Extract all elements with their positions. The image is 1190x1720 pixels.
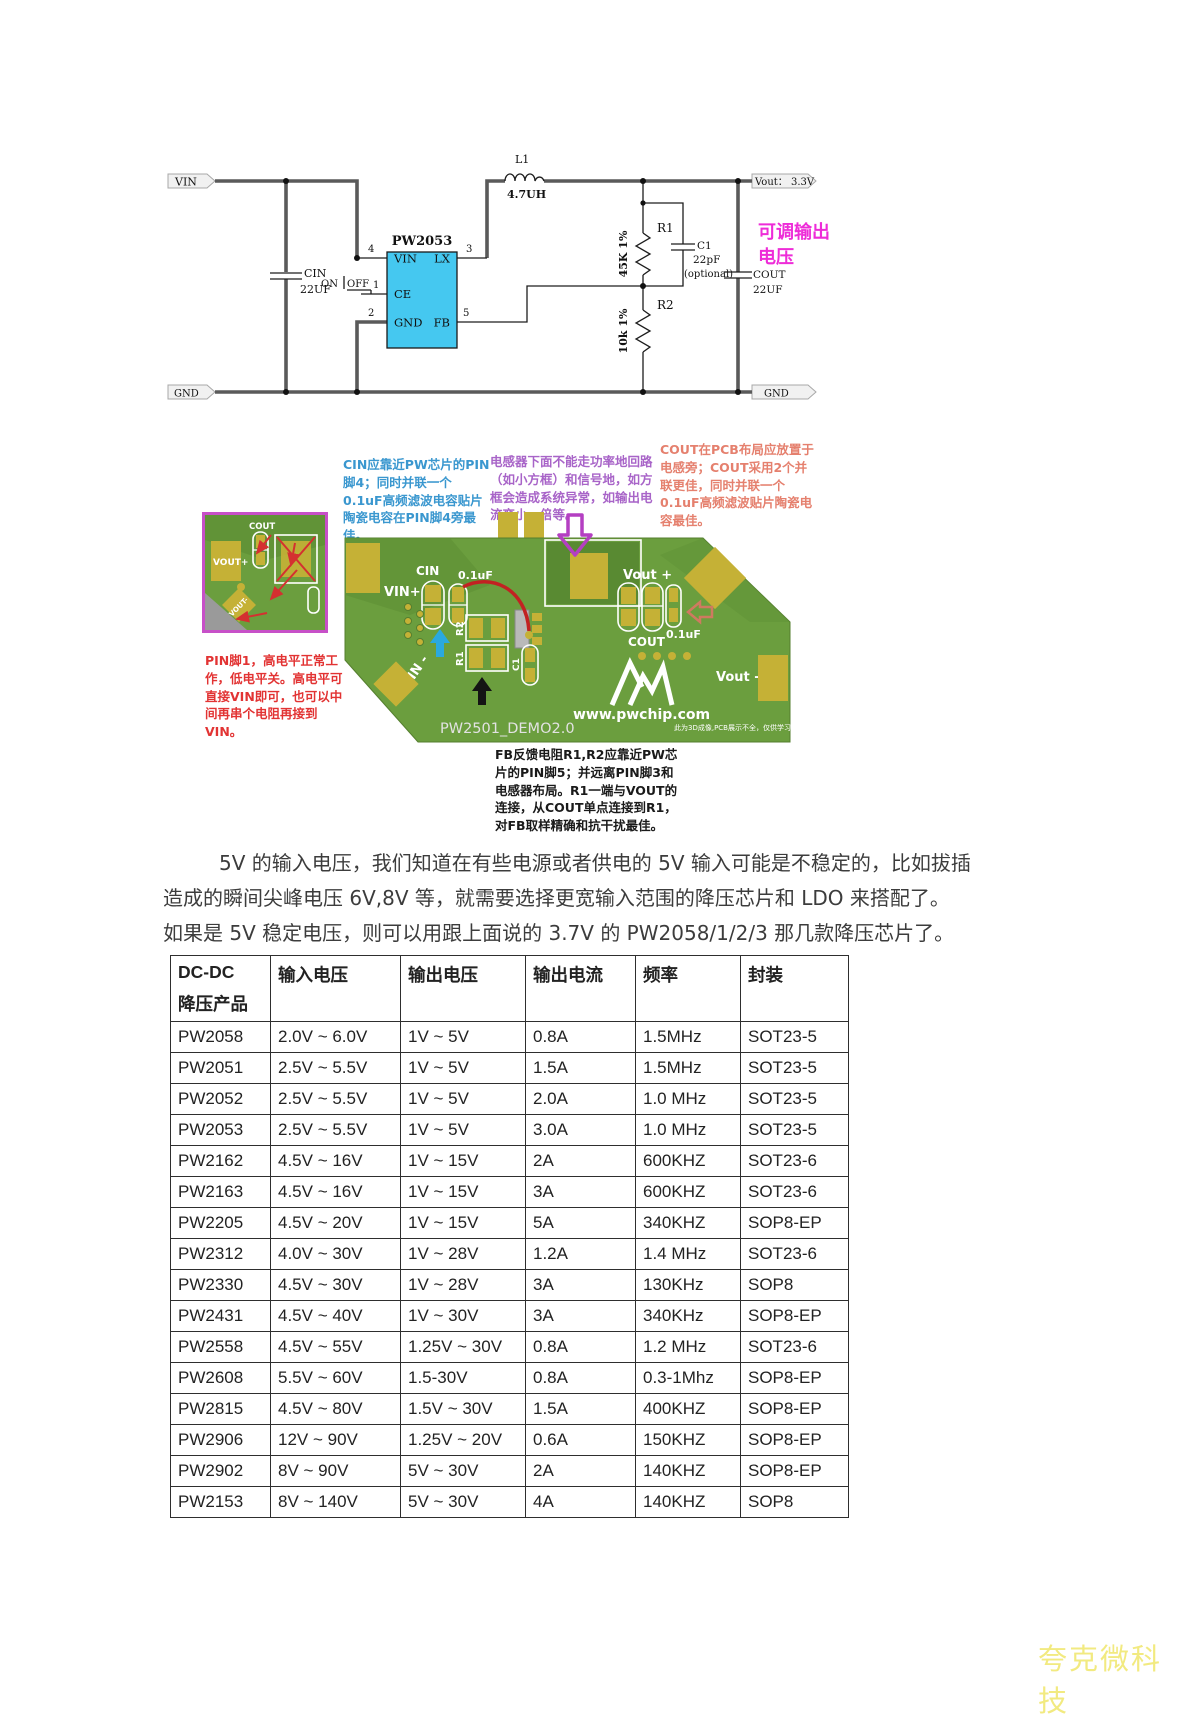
table-cell: 600KHZ <box>636 1146 741 1177</box>
gnd-right-label: GND <box>764 389 789 400</box>
paragraph-line2: 造成的瞬间尖峰电压 6V,8V 等，就需要选择更宽输入范围的降压芯片和 LDO … <box>163 881 1058 916</box>
table-cell: 1V ~ 28V <box>401 1270 526 1301</box>
table-cell: SOP8-EP <box>741 1363 849 1394</box>
note-pin1-enable: PIN脚1，高电平正常工作，低电平关。高电平可直接VIN即可，也可以中间再串个电… <box>205 652 345 741</box>
table-cell: 600KHZ <box>636 1177 741 1208</box>
header-product: DC-DC 降压产品 <box>171 956 271 1022</box>
chip-title: PW2053 <box>392 234 453 249</box>
table-row: PW21538V ~ 140V5V ~ 30V4A140KHZSOP8 <box>171 1487 849 1518</box>
table-cell: SOP8-EP <box>741 1301 849 1332</box>
adjustable-output-label: 可调输出 电压 <box>758 220 830 270</box>
table-cell: PW2053 <box>171 1115 271 1146</box>
l1-inductor: L1 4.7UH <box>505 153 546 201</box>
table-cell: 1V ~ 30V <box>401 1301 526 1332</box>
note-fb-resistors: FB反馈电阻R1,R2应靠近PW芯片的PIN脚5；并远离PIN脚3和电感器布局。… <box>495 746 681 835</box>
table-cell: 150KHZ <box>636 1425 741 1456</box>
inset-inductor-footprint <box>275 535 317 583</box>
table-cell: 5V ~ 30V <box>401 1456 526 1487</box>
pcb-board-name: PW2501_DEMO2.0 <box>440 721 575 737</box>
table-cell: SOP8-EP <box>741 1208 849 1239</box>
pcb-cout-label: COUT <box>628 635 666 649</box>
c1-value: 22pF <box>693 254 720 266</box>
pcb-vout-minus-label: Vout - <box>716 670 760 685</box>
inset-cout-label: COUT <box>249 522 275 532</box>
cout-capacitor: COUT 22UF <box>724 269 786 296</box>
table-cell: 1.0 MHz <box>636 1115 741 1146</box>
table-cell: 1.5A <box>526 1053 636 1084</box>
table-cell: 2A <box>526 1456 636 1487</box>
table-cell: PW2051 <box>171 1053 271 1084</box>
pcb-inset-image: VOUT- COUT VOUT+ <box>202 512 328 633</box>
table-cell: 4.5V ~ 55V <box>271 1332 401 1363</box>
table-cell: 0.6A <box>526 1425 636 1456</box>
table-cell: 5V ~ 30V <box>401 1487 526 1518</box>
table-cell: 140KHZ <box>636 1456 741 1487</box>
table-cell: SOT23-6 <box>741 1239 849 1270</box>
table-cell: 1.4 MHz <box>636 1239 741 1270</box>
gnd-net-flag-left: GND <box>168 385 215 400</box>
table-cell: 8V ~ 90V <box>271 1456 401 1487</box>
table-cell: SOP8-EP <box>741 1425 849 1456</box>
table-cell: 0.3-1Mhz <box>636 1363 741 1394</box>
pcb-vin-pad <box>346 543 380 593</box>
table-cell: 1V ~ 15V <box>401 1146 526 1177</box>
pcb-c1-label: C1 <box>512 658 522 671</box>
paragraph-line3: 如果是 5V 稳定电压，则可以用跟上面说的 3.7V 的 PW2058/1/2/… <box>163 916 1058 951</box>
table-cell: 1.2 MHz <box>636 1332 741 1363</box>
table-cell: PW2815 <box>171 1394 271 1425</box>
table-cell: 3A <box>526 1301 636 1332</box>
pcb-vout-pad <box>758 655 788 701</box>
table-cell: 3A <box>526 1177 636 1208</box>
table-cell: PW2205 <box>171 1208 271 1239</box>
header-output-voltage: 输出电压 <box>401 956 526 1022</box>
table-cell: 3.0A <box>526 1115 636 1146</box>
r1-value: 45K 1% <box>617 230 630 277</box>
table-cell: 1V ~ 5V <box>401 1053 526 1084</box>
table-cell: 400KHZ <box>636 1394 741 1425</box>
table-cell: 0.8A <box>526 1022 636 1053</box>
body-paragraph: 5V 的输入电压，我们知道在有些电源或者供电的 5V 输入可能是不稳定的，比如拔… <box>163 846 1058 951</box>
pin-label-gnd: GND <box>394 316 422 330</box>
table-cell: 4.0V ~ 30V <box>271 1239 401 1270</box>
table-cell: PW2330 <box>171 1270 271 1301</box>
table-cell: 4.5V ~ 16V <box>271 1146 401 1177</box>
table-cell: 2.5V ~ 5.5V <box>271 1115 401 1146</box>
pcb-r1-label: R1 <box>455 651 466 666</box>
table-cell: 4.5V ~ 40V <box>271 1301 401 1332</box>
table-cell: SOT23-5 <box>741 1022 849 1053</box>
table-cell: 2.0V ~ 6.0V <box>271 1022 401 1053</box>
pcb-vin-plus-label: VIN+ <box>384 585 421 600</box>
table-cell: 1V ~ 5V <box>401 1084 526 1115</box>
table-row: PW21624.5V ~ 16V1V ~ 15V2A600KHZSOT23-6 <box>171 1146 849 1177</box>
table-cell: PW2608 <box>171 1363 271 1394</box>
header-product-line2: 降压产品 <box>178 991 263 1016</box>
table-row: PW28154.5V ~ 80V1.5V ~ 30V1.5A400KHZSOP8… <box>171 1394 849 1425</box>
l1-value: 4.7UH <box>507 188 546 201</box>
table-cell: 1V ~ 5V <box>401 1115 526 1146</box>
table-cell: PW2153 <box>171 1487 271 1518</box>
table-row: PW20512.5V ~ 5.5V1V ~ 5V1.5A1.5MHzSOT23-… <box>171 1053 849 1084</box>
table-cell: SOP8-EP <box>741 1456 849 1487</box>
schematic-wires <box>215 178 752 395</box>
adjustable-output-line2: 电压 <box>758 245 830 270</box>
table-cell: PW2052 <box>171 1084 271 1115</box>
dcdc-table-body: PW20582.0V ~ 6.0V1V ~ 5V0.8A1.5MHzSOT23-… <box>171 1022 849 1518</box>
table-row: PW26085.5V ~ 60V1.5-30V0.8A0.3-1MhzSOP8-… <box>171 1363 849 1394</box>
pw2053-chip: PW2053 VIN CE GND LX FB 4 1 2 3 5 <box>368 234 472 348</box>
cin-ref: CIN <box>304 267 327 280</box>
gnd-left-label: GND <box>174 389 199 400</box>
cout-value: 22UF <box>753 284 783 296</box>
table-row: PW23124.0V ~ 30V1V ~ 28V1.2A1.4 MHzSOT23… <box>171 1239 849 1270</box>
pin-number-4: 4 <box>368 244 374 255</box>
table-cell: 5.5V ~ 60V <box>271 1363 401 1394</box>
table-cell: 1V ~ 28V <box>401 1239 526 1270</box>
pcb-inset-canvas: VOUT- COUT VOUT+ <box>205 515 325 630</box>
adjustable-output-line1: 可调输出 <box>758 220 830 245</box>
pin-label-lx: LX <box>434 252 451 266</box>
r2-resistor: R2 10k 1% <box>617 298 674 353</box>
switch-off-label: OFF <box>347 279 369 290</box>
vout-net-flag: Vout： 3.3V <box>752 174 816 188</box>
pcb-cin-label: CIN <box>416 564 439 578</box>
header-product-line1: DC-DC <box>178 962 263 983</box>
pcb-board-image: CIN 0.1uF VIN+ R2 R1 <box>330 495 860 745</box>
table-cell: 4.5V ~ 30V <box>271 1270 401 1301</box>
header-input-voltage: 输入电压 <box>271 956 401 1022</box>
table-cell: 1.25V ~ 20V <box>401 1425 526 1456</box>
table-cell: 1.5V ~ 30V <box>401 1394 526 1425</box>
pcb-cout-cap-label: 0.1uF <box>666 628 701 641</box>
table-row: PW25584.5V ~ 55V1.25V ~ 30V0.8A1.2 MHzSO… <box>171 1332 849 1363</box>
table-row: PW21634.5V ~ 16V1V ~ 15V3A600KHZSOT23-6 <box>171 1177 849 1208</box>
pin-number-3: 3 <box>466 244 472 255</box>
table-cell: 1.5-30V <box>401 1363 526 1394</box>
table-cell: 2.5V ~ 5.5V <box>271 1084 401 1115</box>
table-cell: PW2902 <box>171 1456 271 1487</box>
table-cell: SOP8 <box>741 1270 849 1301</box>
gnd-net-flag-right: GND <box>752 385 816 400</box>
cout-ref: COUT <box>753 269 786 281</box>
header-frequency: 频率 <box>636 956 741 1022</box>
table-row: PW24314.5V ~ 40V1V ~ 30V3A340KHzSOP8-EP <box>171 1301 849 1332</box>
table-cell: 5A <box>526 1208 636 1239</box>
table-cell: SOT23-6 <box>741 1177 849 1208</box>
table-cell: PW2906 <box>171 1425 271 1456</box>
r1-ref: R1 <box>657 221 674 235</box>
r2-ref: R2 <box>657 298 674 312</box>
table-cell: PW2058 <box>171 1022 271 1053</box>
vin-net-flag: VIN <box>168 174 215 189</box>
table-cell: 2.5V ~ 5.5V <box>271 1053 401 1084</box>
table-cell: 130KHz <box>636 1270 741 1301</box>
table-cell: 1.5MHz <box>636 1022 741 1053</box>
table-cell: 1V ~ 5V <box>401 1022 526 1053</box>
pin-label-vin: VIN <box>393 252 417 266</box>
table-cell: 0.8A <box>526 1332 636 1363</box>
table-header-row: DC-DC 降压产品 输入电压 输出电压 输出电流 频率 封装 <box>171 956 849 1022</box>
table-cell: 8V ~ 140V <box>271 1487 401 1518</box>
c1-ref: C1 <box>697 240 712 252</box>
pin-label-fb: FB <box>434 316 450 330</box>
table-cell: 1.2A <box>526 1239 636 1270</box>
vout-flag-label: Vout： 3.3V <box>754 177 815 188</box>
table-cell: 140KHZ <box>636 1487 741 1518</box>
inset-vout-plus-label: VOUT+ <box>213 558 248 568</box>
table-row: PW20532.5V ~ 5.5V1V ~ 5V3.0A1.0 MHzSOT23… <box>171 1115 849 1146</box>
table-cell: PW2162 <box>171 1146 271 1177</box>
table-cell: 340KHZ <box>636 1208 741 1239</box>
table-row: PW29028V ~ 90V5V ~ 30V2A140KHZSOP8-EP <box>171 1456 849 1487</box>
table-cell: 2A <box>526 1146 636 1177</box>
table-cell: 4A <box>526 1487 636 1518</box>
table-row: PW23304.5V ~ 30V1V ~ 28V3A130KHzSOP8 <box>171 1270 849 1301</box>
table-cell: 1.0 MHz <box>636 1084 741 1115</box>
pcb-website-label: www.pwchip.com <box>573 707 710 723</box>
watermark-text: 夸克微科技 <box>1038 1636 1190 1720</box>
table-cell: SOP8 <box>741 1487 849 1518</box>
table-cell: 1.5MHz <box>636 1053 741 1084</box>
table-row: PW20582.0V ~ 6.0V1V ~ 5V0.8A1.5MHzSOT23-… <box>171 1022 849 1053</box>
r1-resistor: R1 45K 1% <box>617 221 674 277</box>
schematic-diagram: VIN Vout： 3.3V GND GND <box>163 148 823 408</box>
c1-capacitor: C1 22pF (optional) <box>671 240 733 280</box>
table-cell: SOT23-5 <box>741 1053 849 1084</box>
table-cell: SOP8-EP <box>741 1394 849 1425</box>
pin-number-1: 1 <box>373 280 379 291</box>
pin-number-5: 5 <box>463 308 469 319</box>
table-row: PW20522.5V ~ 5.5V1V ~ 5V2.0A1.0 MHzSOT23… <box>171 1084 849 1115</box>
table-cell: 4.5V ~ 16V <box>271 1177 401 1208</box>
vin-flag-label: VIN <box>174 176 197 189</box>
pcb-disclaimer: 此为3D成像,PCB展示不全，仅供学习。 <box>674 723 798 732</box>
table-cell: PW2163 <box>171 1177 271 1208</box>
pcb-r2-label: R2 <box>455 621 466 636</box>
pin-number-2: 2 <box>368 308 374 319</box>
table-cell: 3A <box>526 1270 636 1301</box>
table-cell: SOT23-6 <box>741 1332 849 1363</box>
table-cell: SOT23-6 <box>741 1146 849 1177</box>
table-cell: PW2312 <box>171 1239 271 1270</box>
dcdc-product-table: DC-DC 降压产品 输入电压 输出电压 输出电流 频率 封装 PW20582.… <box>170 955 849 1518</box>
table-cell: 1.25V ~ 30V <box>401 1332 526 1363</box>
table-cell: 1V ~ 15V <box>401 1177 526 1208</box>
pin-label-ce: CE <box>394 287 411 301</box>
r2-value: 10k 1% <box>617 308 630 353</box>
pcb-cin-cap-label: 0.1uF <box>458 569 493 582</box>
table-cell: SOT23-5 <box>741 1084 849 1115</box>
table-row: PW22054.5V ~ 20V1V ~ 15V5A340KHZSOP8-EP <box>171 1208 849 1239</box>
cin-value: 22UF <box>300 283 331 296</box>
pcb-vout-plus-label: Vout + <box>623 568 672 583</box>
table-cell: PW2431 <box>171 1301 271 1332</box>
table-cell: 1.5A <box>526 1394 636 1425</box>
table-cell: SOT23-5 <box>741 1115 849 1146</box>
table-cell: 4.5V ~ 80V <box>271 1394 401 1425</box>
table-row: PW290612V ~ 90V1.25V ~ 20V0.6A150KHZSOP8… <box>171 1425 849 1456</box>
table-cell: 2.0A <box>526 1084 636 1115</box>
header-package: 封装 <box>741 956 849 1022</box>
header-output-current: 输出电流 <box>526 956 636 1022</box>
table-cell: PW2558 <box>171 1332 271 1363</box>
l1-ref: L1 <box>515 153 529 166</box>
table-cell: 340KHz <box>636 1301 741 1332</box>
paragraph-line1: 5V 的输入电压，我们知道在有些电源或者供电的 5V 输入可能是不稳定的，比如拔… <box>163 846 1058 881</box>
table-cell: 4.5V ~ 20V <box>271 1208 401 1239</box>
table-cell: 1V ~ 15V <box>401 1208 526 1239</box>
table-cell: 0.8A <box>526 1363 636 1394</box>
table-cell: 12V ~ 90V <box>271 1425 401 1456</box>
